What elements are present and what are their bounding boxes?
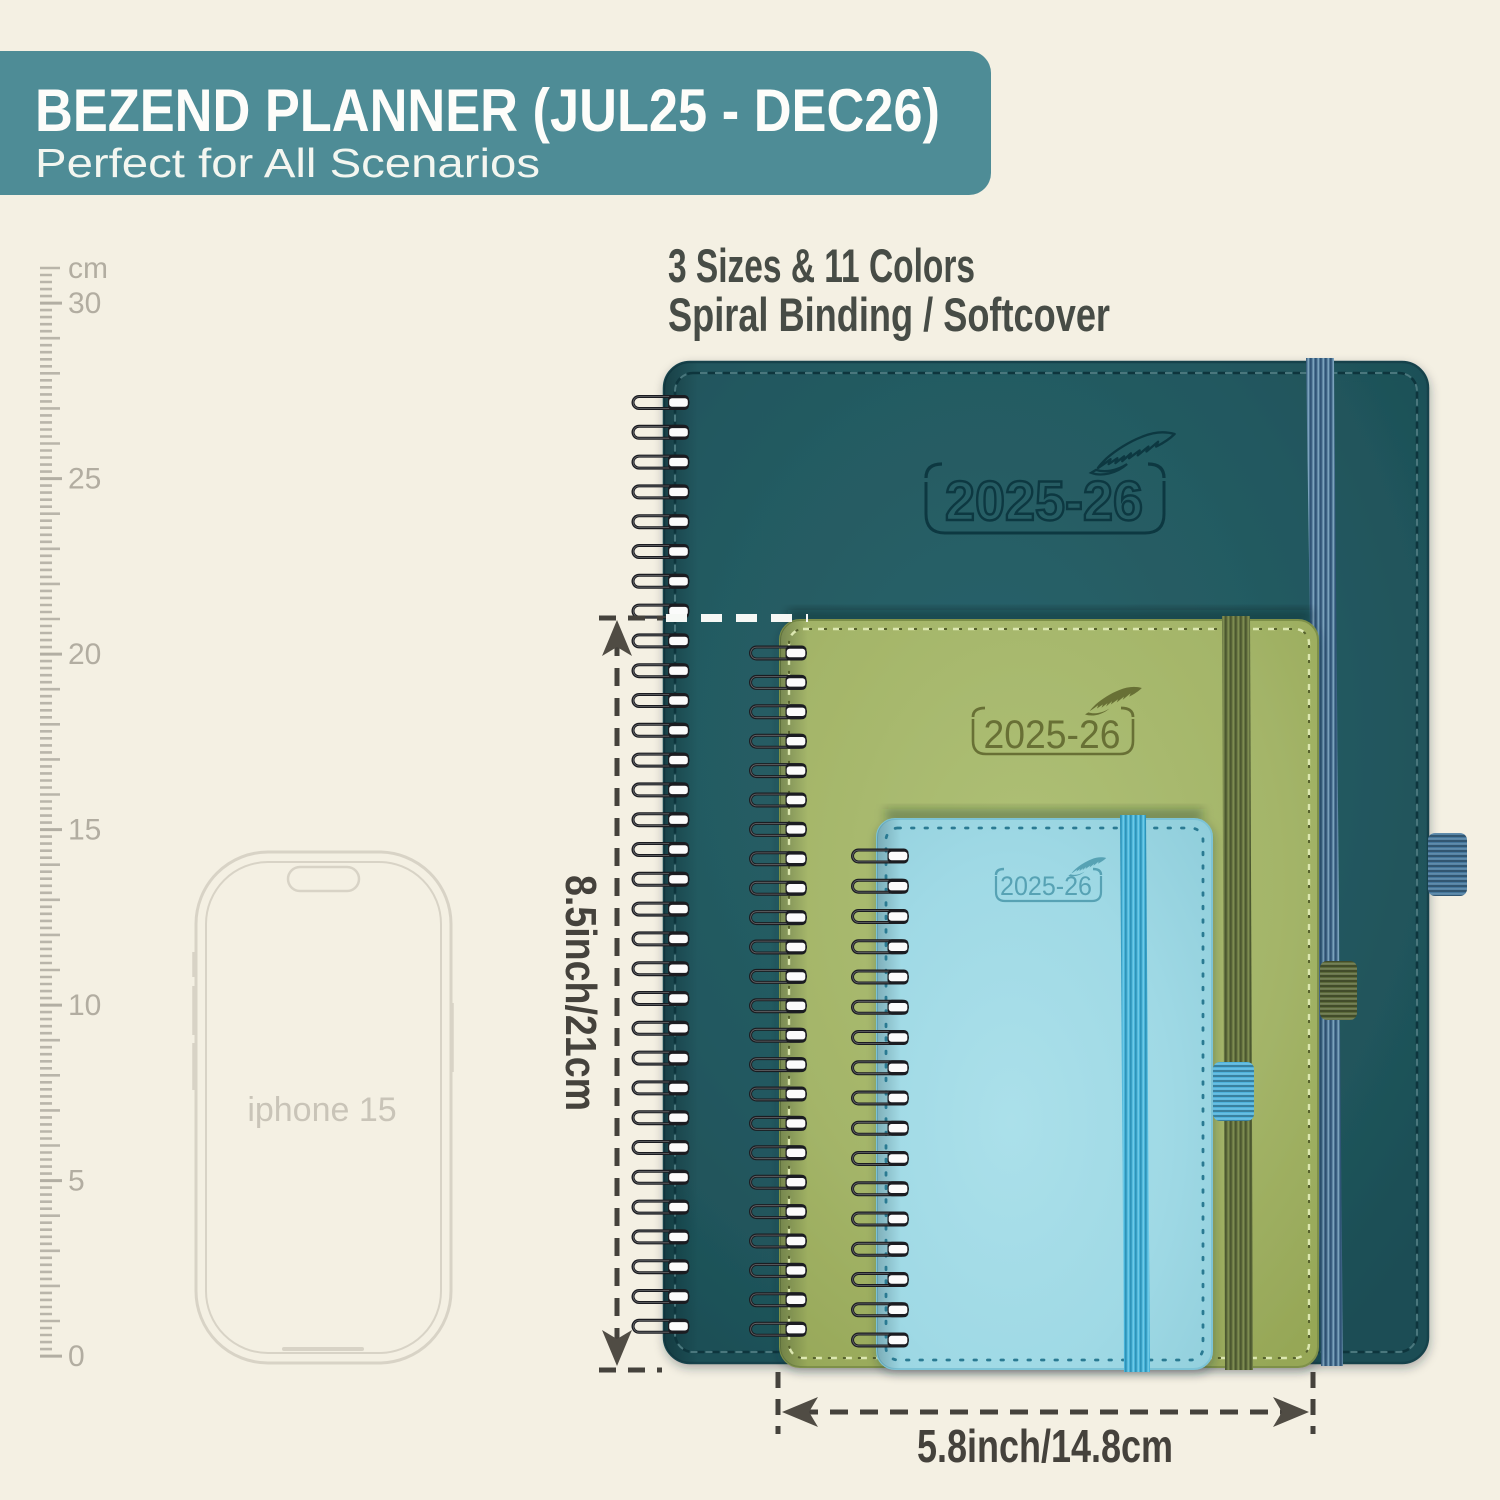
svg-text:5: 5: [68, 1165, 85, 1198]
svg-text:3 Sizes & 11 Colors: 3 Sizes & 11 Colors: [668, 239, 975, 292]
svg-text:5.8inch/14.8cm: 5.8inch/14.8cm: [917, 1420, 1173, 1472]
svg-text:cm: cm: [68, 252, 108, 285]
svg-text:BEZEND PLANNER (JUL25 - DEC26): BEZEND PLANNER (JUL25 - DEC26): [35, 77, 940, 144]
svg-text:2025-26: 2025-26: [984, 713, 1121, 757]
svg-text:25: 25: [68, 463, 101, 496]
svg-text:10: 10: [68, 989, 101, 1022]
svg-text:iphone 15: iphone 15: [247, 1091, 396, 1129]
svg-text:2025-26: 2025-26: [945, 469, 1143, 532]
svg-text:Spiral Binding / Softcover: Spiral Binding / Softcover: [668, 288, 1110, 341]
svg-text:15: 15: [68, 814, 101, 847]
svg-text:20: 20: [68, 638, 101, 671]
svg-text:0: 0: [68, 1340, 85, 1373]
svg-text:30: 30: [68, 287, 101, 320]
svg-text:Perfect for All Scenarios: Perfect for All Scenarios: [35, 140, 540, 186]
svg-text:8.5inch/21cm: 8.5inch/21cm: [556, 875, 605, 1111]
svg-text:2025-26: 2025-26: [1000, 871, 1092, 901]
